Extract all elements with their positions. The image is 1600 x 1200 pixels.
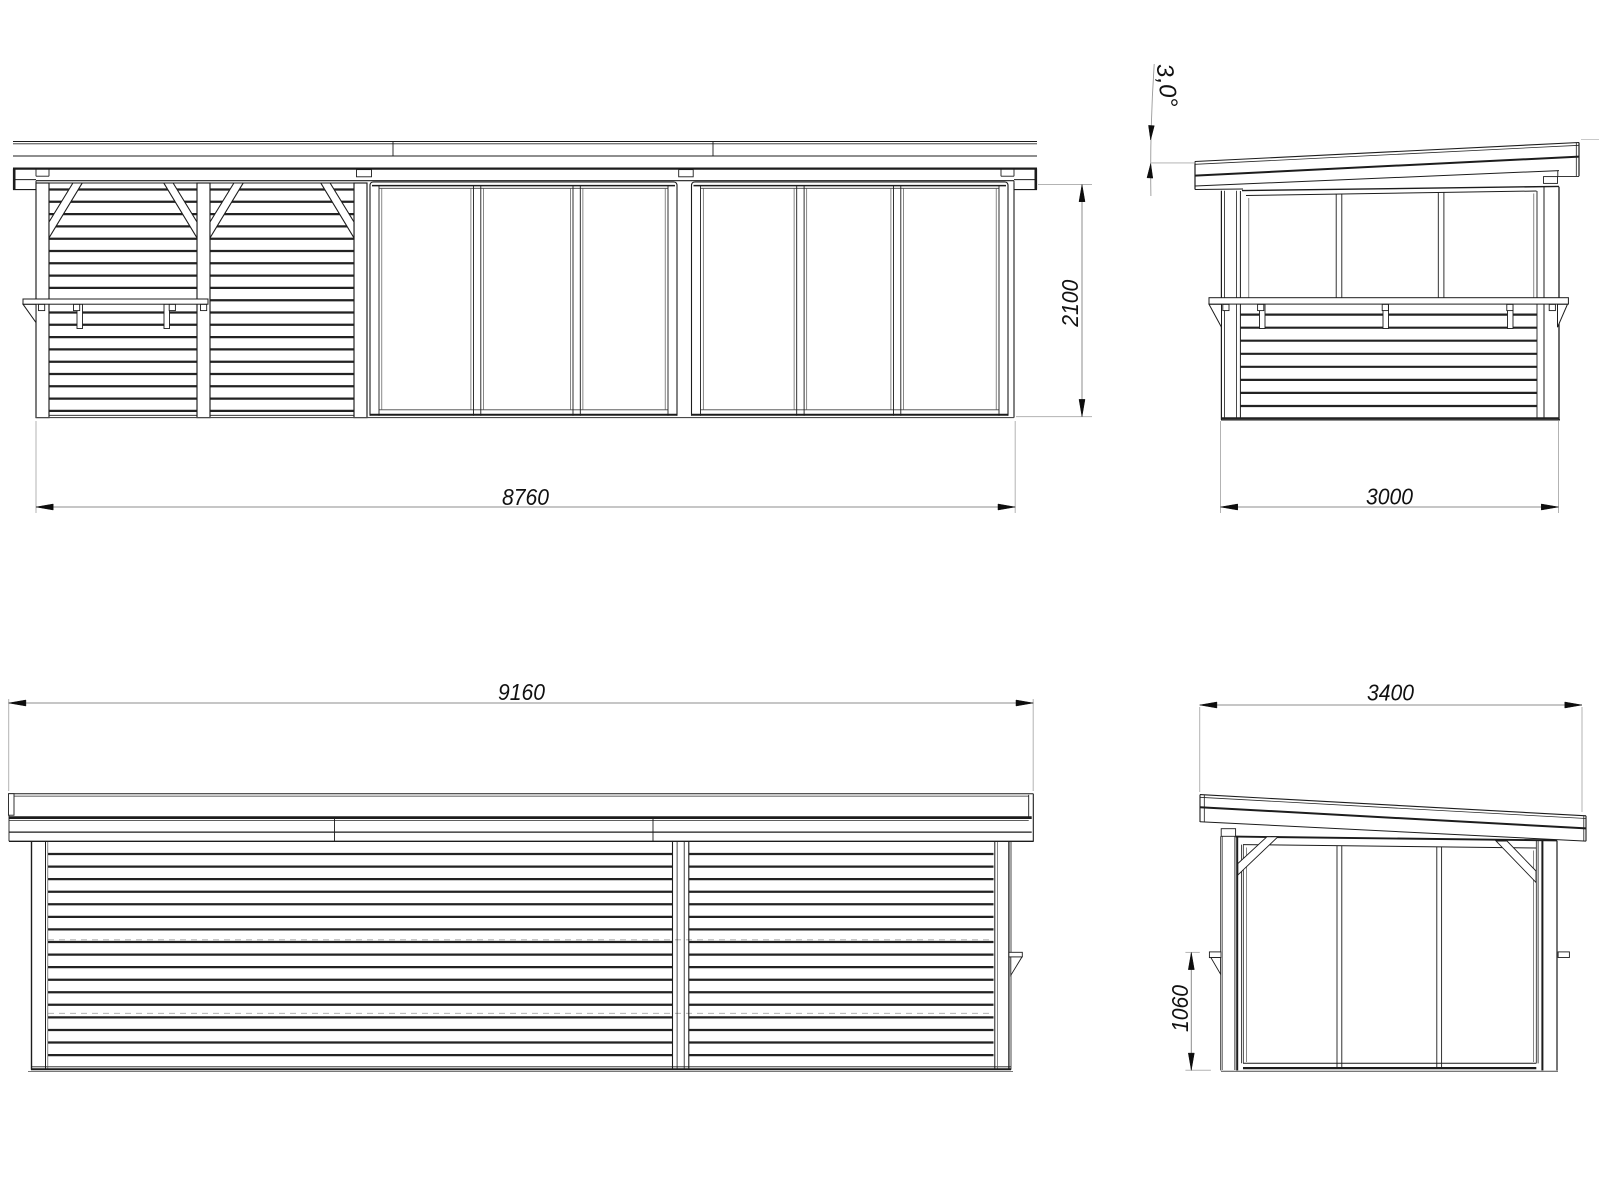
svg-text:9160: 9160 — [498, 679, 545, 705]
svg-text:8760: 8760 — [502, 484, 549, 510]
svg-text:3,0°: 3,0° — [1152, 62, 1183, 109]
svg-text:3400: 3400 — [1367, 680, 1414, 706]
svg-text:1060: 1060 — [1167, 985, 1193, 1032]
svg-text:2100: 2100 — [1057, 280, 1083, 328]
svg-text:3000: 3000 — [1366, 484, 1413, 510]
